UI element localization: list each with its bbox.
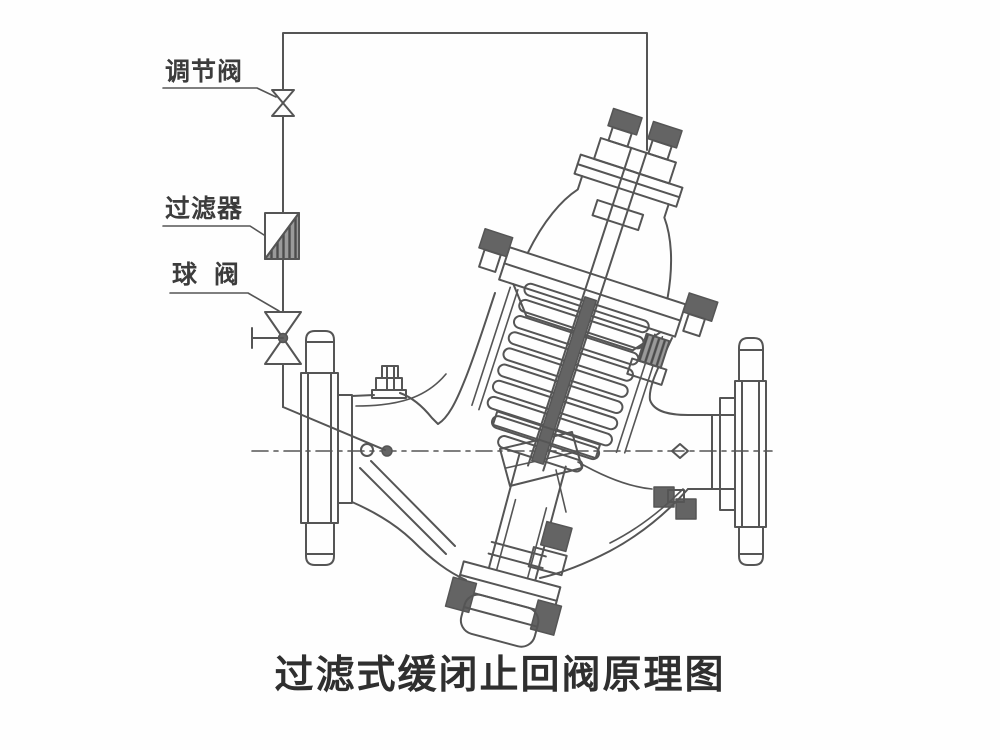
branch-side-bolt: [541, 522, 572, 552]
centerline-ring-marker: [361, 444, 373, 456]
stem-nut: [593, 200, 644, 230]
pilot-tap-line: [283, 407, 385, 450]
bonnet-top-bolts: [604, 109, 682, 162]
regulating-valve-symbol: [272, 90, 294, 116]
filter-symbol: [265, 213, 299, 259]
label-regulating-valve: 调节阀: [165, 60, 243, 85]
bonnet-flange-bolt-right: [678, 293, 718, 338]
inlet-flange: [301, 331, 352, 565]
diagram-canvas: 调节阀 过滤器 球 阀 过滤式缓闭止回阀原理图: [0, 0, 1000, 750]
label-filter: 过滤器: [165, 197, 243, 222]
ball-valve-symbol: [252, 312, 301, 364]
bonnet-flange-bolt-left: [473, 229, 512, 274]
pilot-pipe-run: [283, 33, 647, 150]
centerline-dot-marker: [382, 446, 392, 456]
diagram-title: 过滤式缓闭止回阀原理图: [0, 656, 1000, 695]
bottom-branch: [440, 446, 596, 655]
valve-schematic-svg: [0, 0, 1000, 750]
label-ball-valve: 球 阀: [172, 263, 240, 288]
drawing-root: [163, 33, 772, 654]
bonnet-dome: [528, 167, 582, 261]
